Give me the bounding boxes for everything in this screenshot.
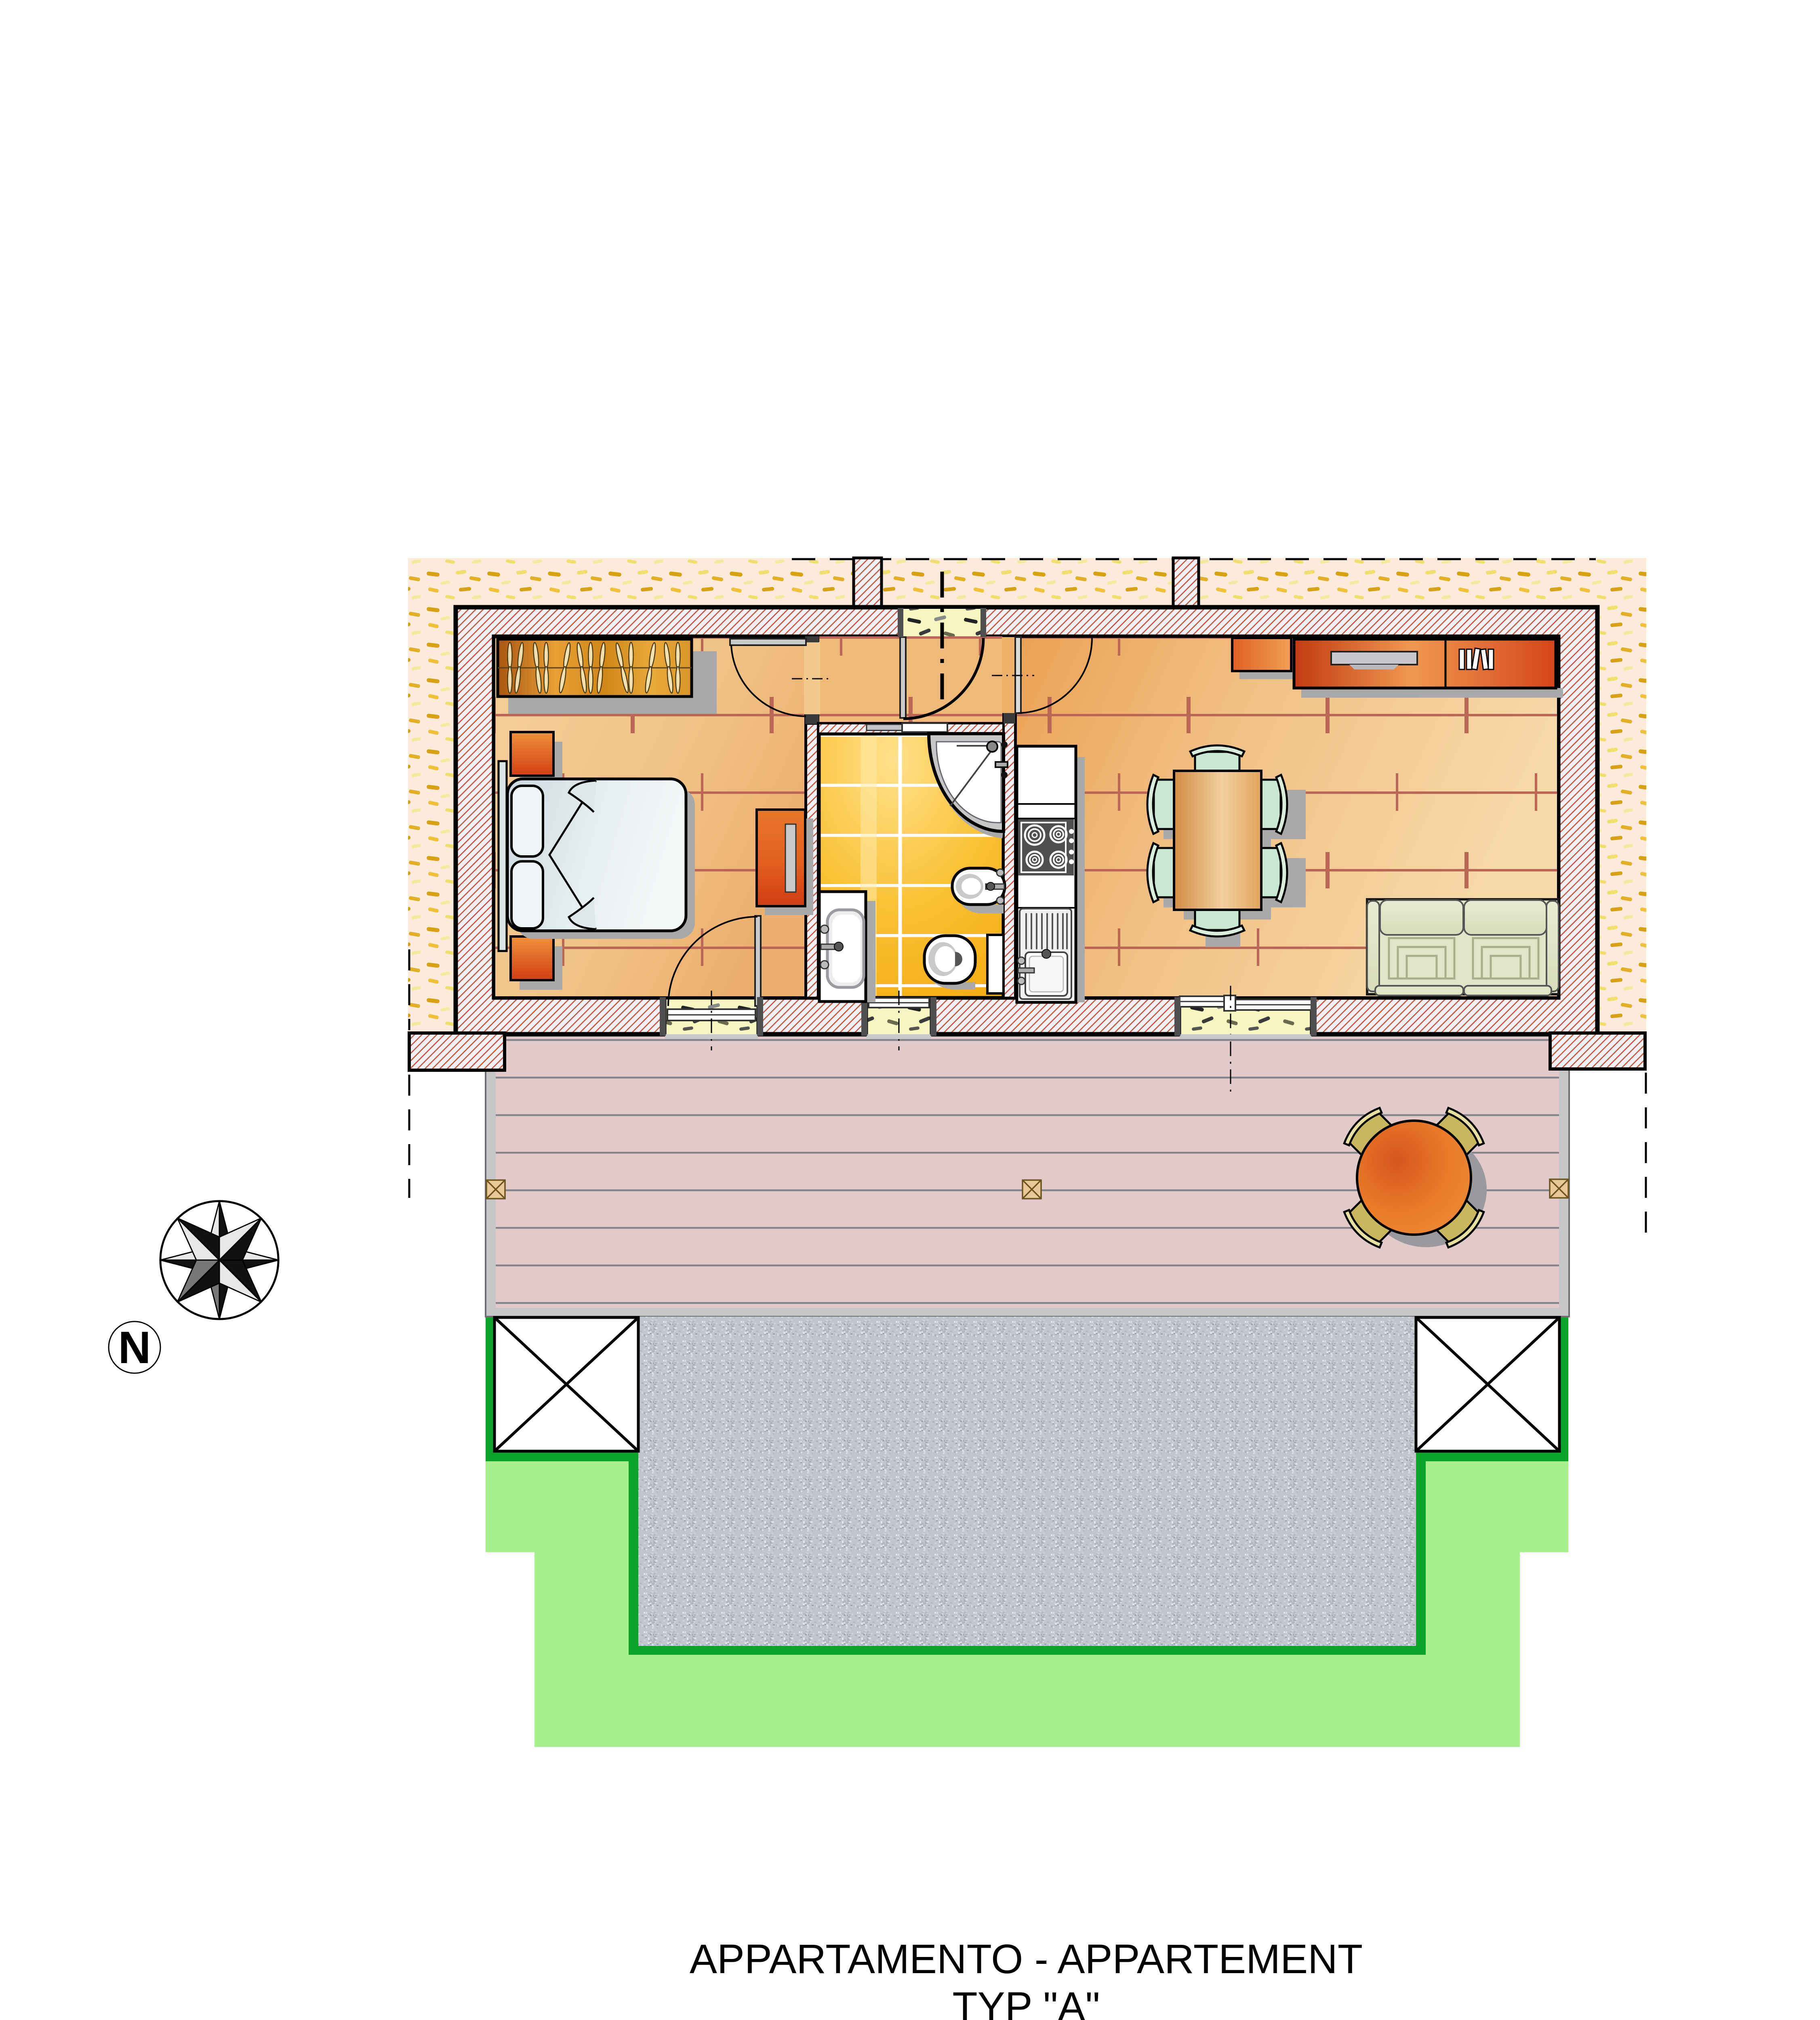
svg-text:TYP "A": TYP "A" [952,1984,1100,2020]
svg-text:APPARTAMENTO - APPARTEMENT: APPARTAMENTO - APPARTEMENT [690,1936,1363,1982]
svg-text:N: N [118,1322,151,1373]
